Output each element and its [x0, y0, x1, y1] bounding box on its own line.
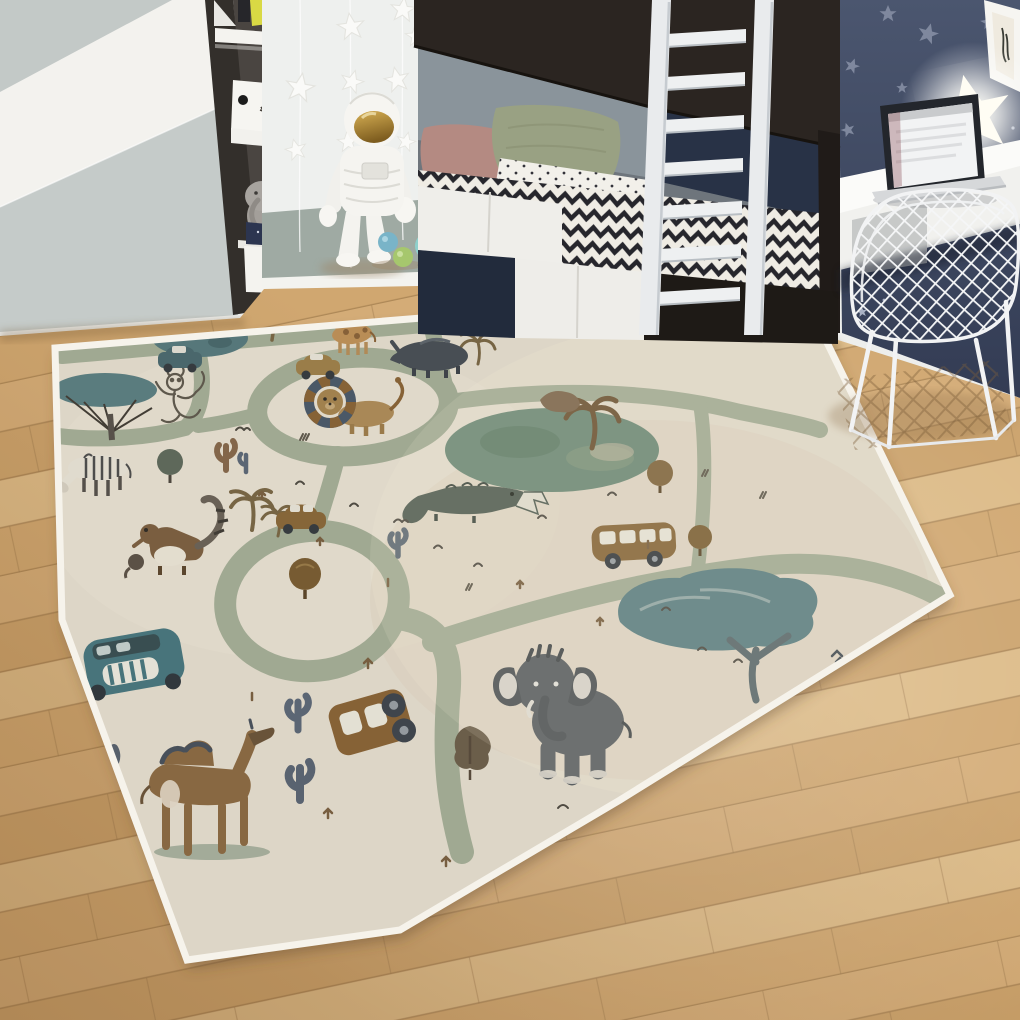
- dark-book: [238, 0, 250, 22]
- gold-visor: [354, 111, 394, 143]
- bedroom-scene: hello: [0, 0, 1020, 1020]
- wardrobe: [0, 0, 238, 332]
- bunk-bed: [414, 0, 840, 344]
- chair-shell: [851, 190, 1018, 342]
- bed-base-navy: [418, 250, 515, 338]
- bed-drawer-white: [515, 258, 644, 340]
- bedroom-photo: hello: [0, 0, 1020, 1020]
